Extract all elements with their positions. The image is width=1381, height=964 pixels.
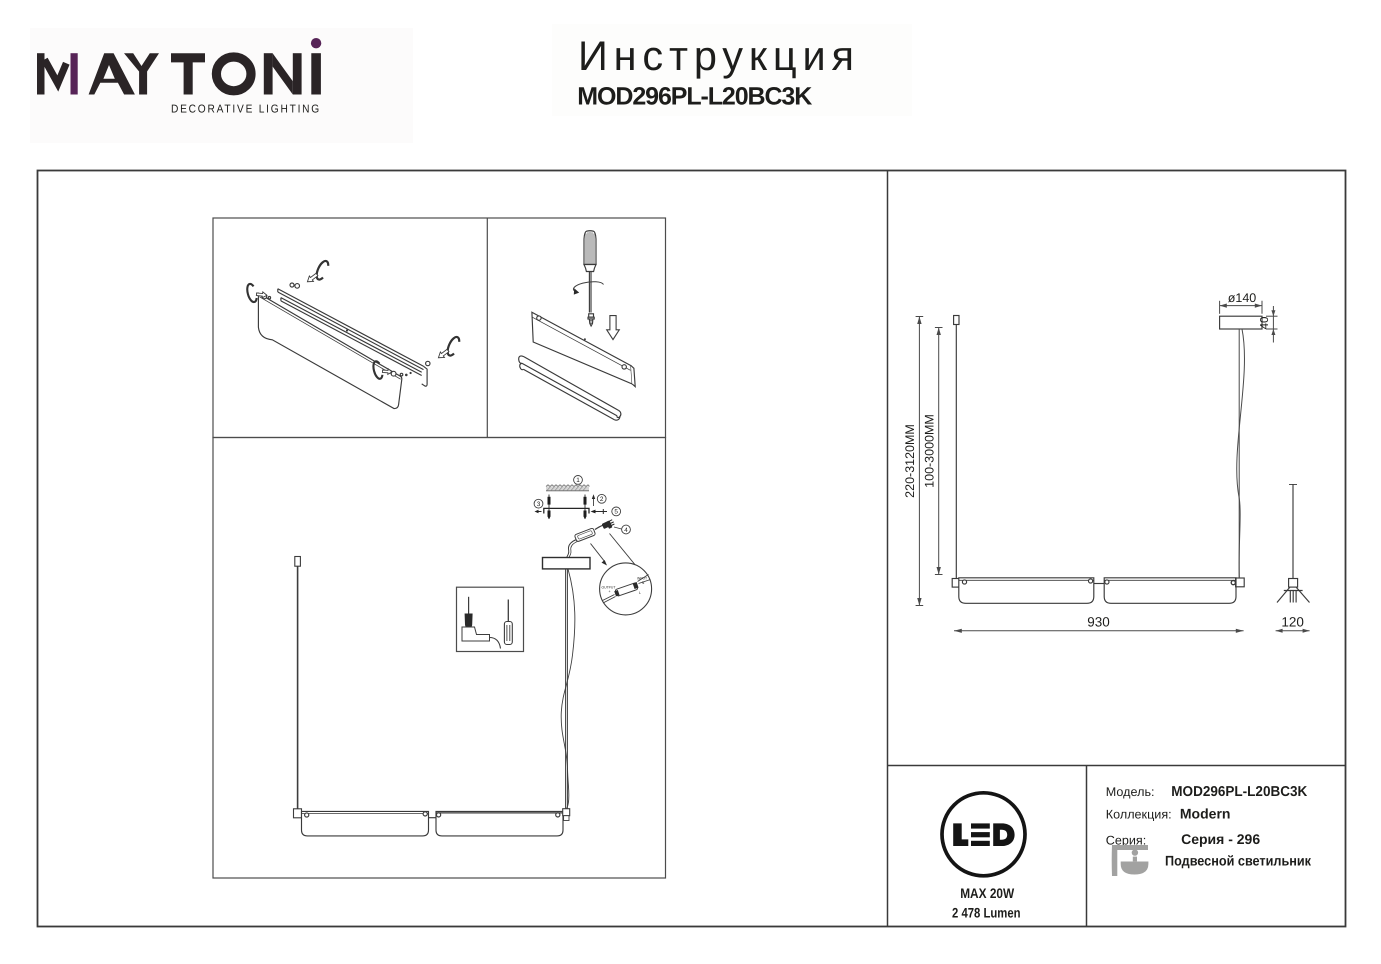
svg-text:930: 930 bbox=[1087, 615, 1110, 630]
svg-text:DECORATIVE LIGHTING: DECORATIVE LIGHTING bbox=[171, 103, 321, 115]
svg-text:ø140: ø140 bbox=[1228, 291, 1257, 305]
svg-text:Инструкция: Инструкция bbox=[578, 32, 854, 79]
svg-text:L: L bbox=[639, 591, 641, 595]
svg-text:40: 40 bbox=[1259, 317, 1271, 330]
svg-text:Modern: Modern bbox=[1180, 805, 1231, 821]
svg-text:220-3120MM: 220-3120MM bbox=[903, 424, 917, 498]
svg-text:5: 5 bbox=[614, 509, 618, 516]
svg-text:MOD296PL-L20BC3K: MOD296PL-L20BC3K bbox=[1171, 784, 1308, 800]
svg-text:Подвесной светильник: Подвесной светильник bbox=[1165, 852, 1312, 868]
svg-text:3: 3 bbox=[537, 501, 541, 508]
svg-text:120: 120 bbox=[1281, 615, 1304, 630]
svg-text:+: + bbox=[608, 590, 610, 594]
svg-text:Коллекция:: Коллекция: bbox=[1106, 808, 1172, 822]
svg-text:100-3000MM: 100-3000MM bbox=[922, 414, 936, 488]
svg-text:Серия - 296: Серия - 296 bbox=[1181, 831, 1260, 847]
svg-text:MAX 20W: MAX 20W bbox=[960, 886, 1015, 901]
svg-text:4: 4 bbox=[624, 527, 628, 534]
svg-text:2: 2 bbox=[600, 496, 604, 503]
svg-text:2 478 Lumen: 2 478 Lumen bbox=[952, 906, 1021, 921]
svg-text:Модель:: Модель: bbox=[1106, 785, 1155, 799]
svg-text:1: 1 bbox=[576, 477, 580, 484]
svg-text:N: N bbox=[642, 581, 645, 585]
svg-text:MOD296PL-L20BC3K: MOD296PL-L20BC3K bbox=[577, 83, 812, 111]
